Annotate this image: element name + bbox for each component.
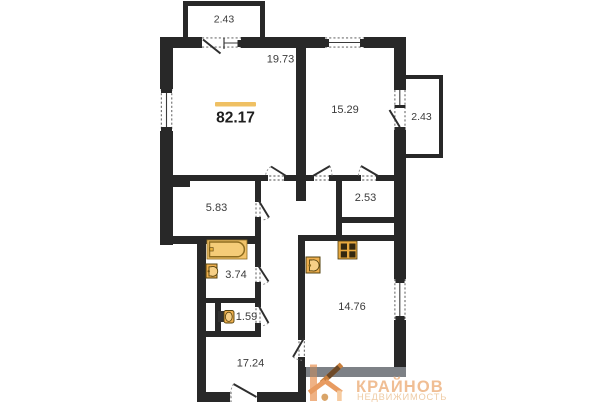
svg-text:НЕДВИЖИМОСТЬ: НЕДВИЖИМОСТЬ [357, 392, 447, 402]
svg-text:5.83: 5.83 [206, 202, 227, 214]
svg-text:82.17: 82.17 [216, 110, 255, 127]
svg-text:1.59: 1.59 [236, 311, 257, 323]
svg-text:2.43: 2.43 [214, 14, 235, 26]
svg-text:3.74: 3.74 [225, 269, 246, 281]
svg-text:15.29: 15.29 [331, 104, 359, 116]
svg-text:17.24: 17.24 [237, 358, 265, 370]
svg-text:2.43: 2.43 [411, 111, 432, 123]
svg-text:14.76: 14.76 [338, 301, 366, 313]
svg-text:19.73: 19.73 [267, 54, 295, 66]
svg-text:2.53: 2.53 [355, 192, 376, 204]
